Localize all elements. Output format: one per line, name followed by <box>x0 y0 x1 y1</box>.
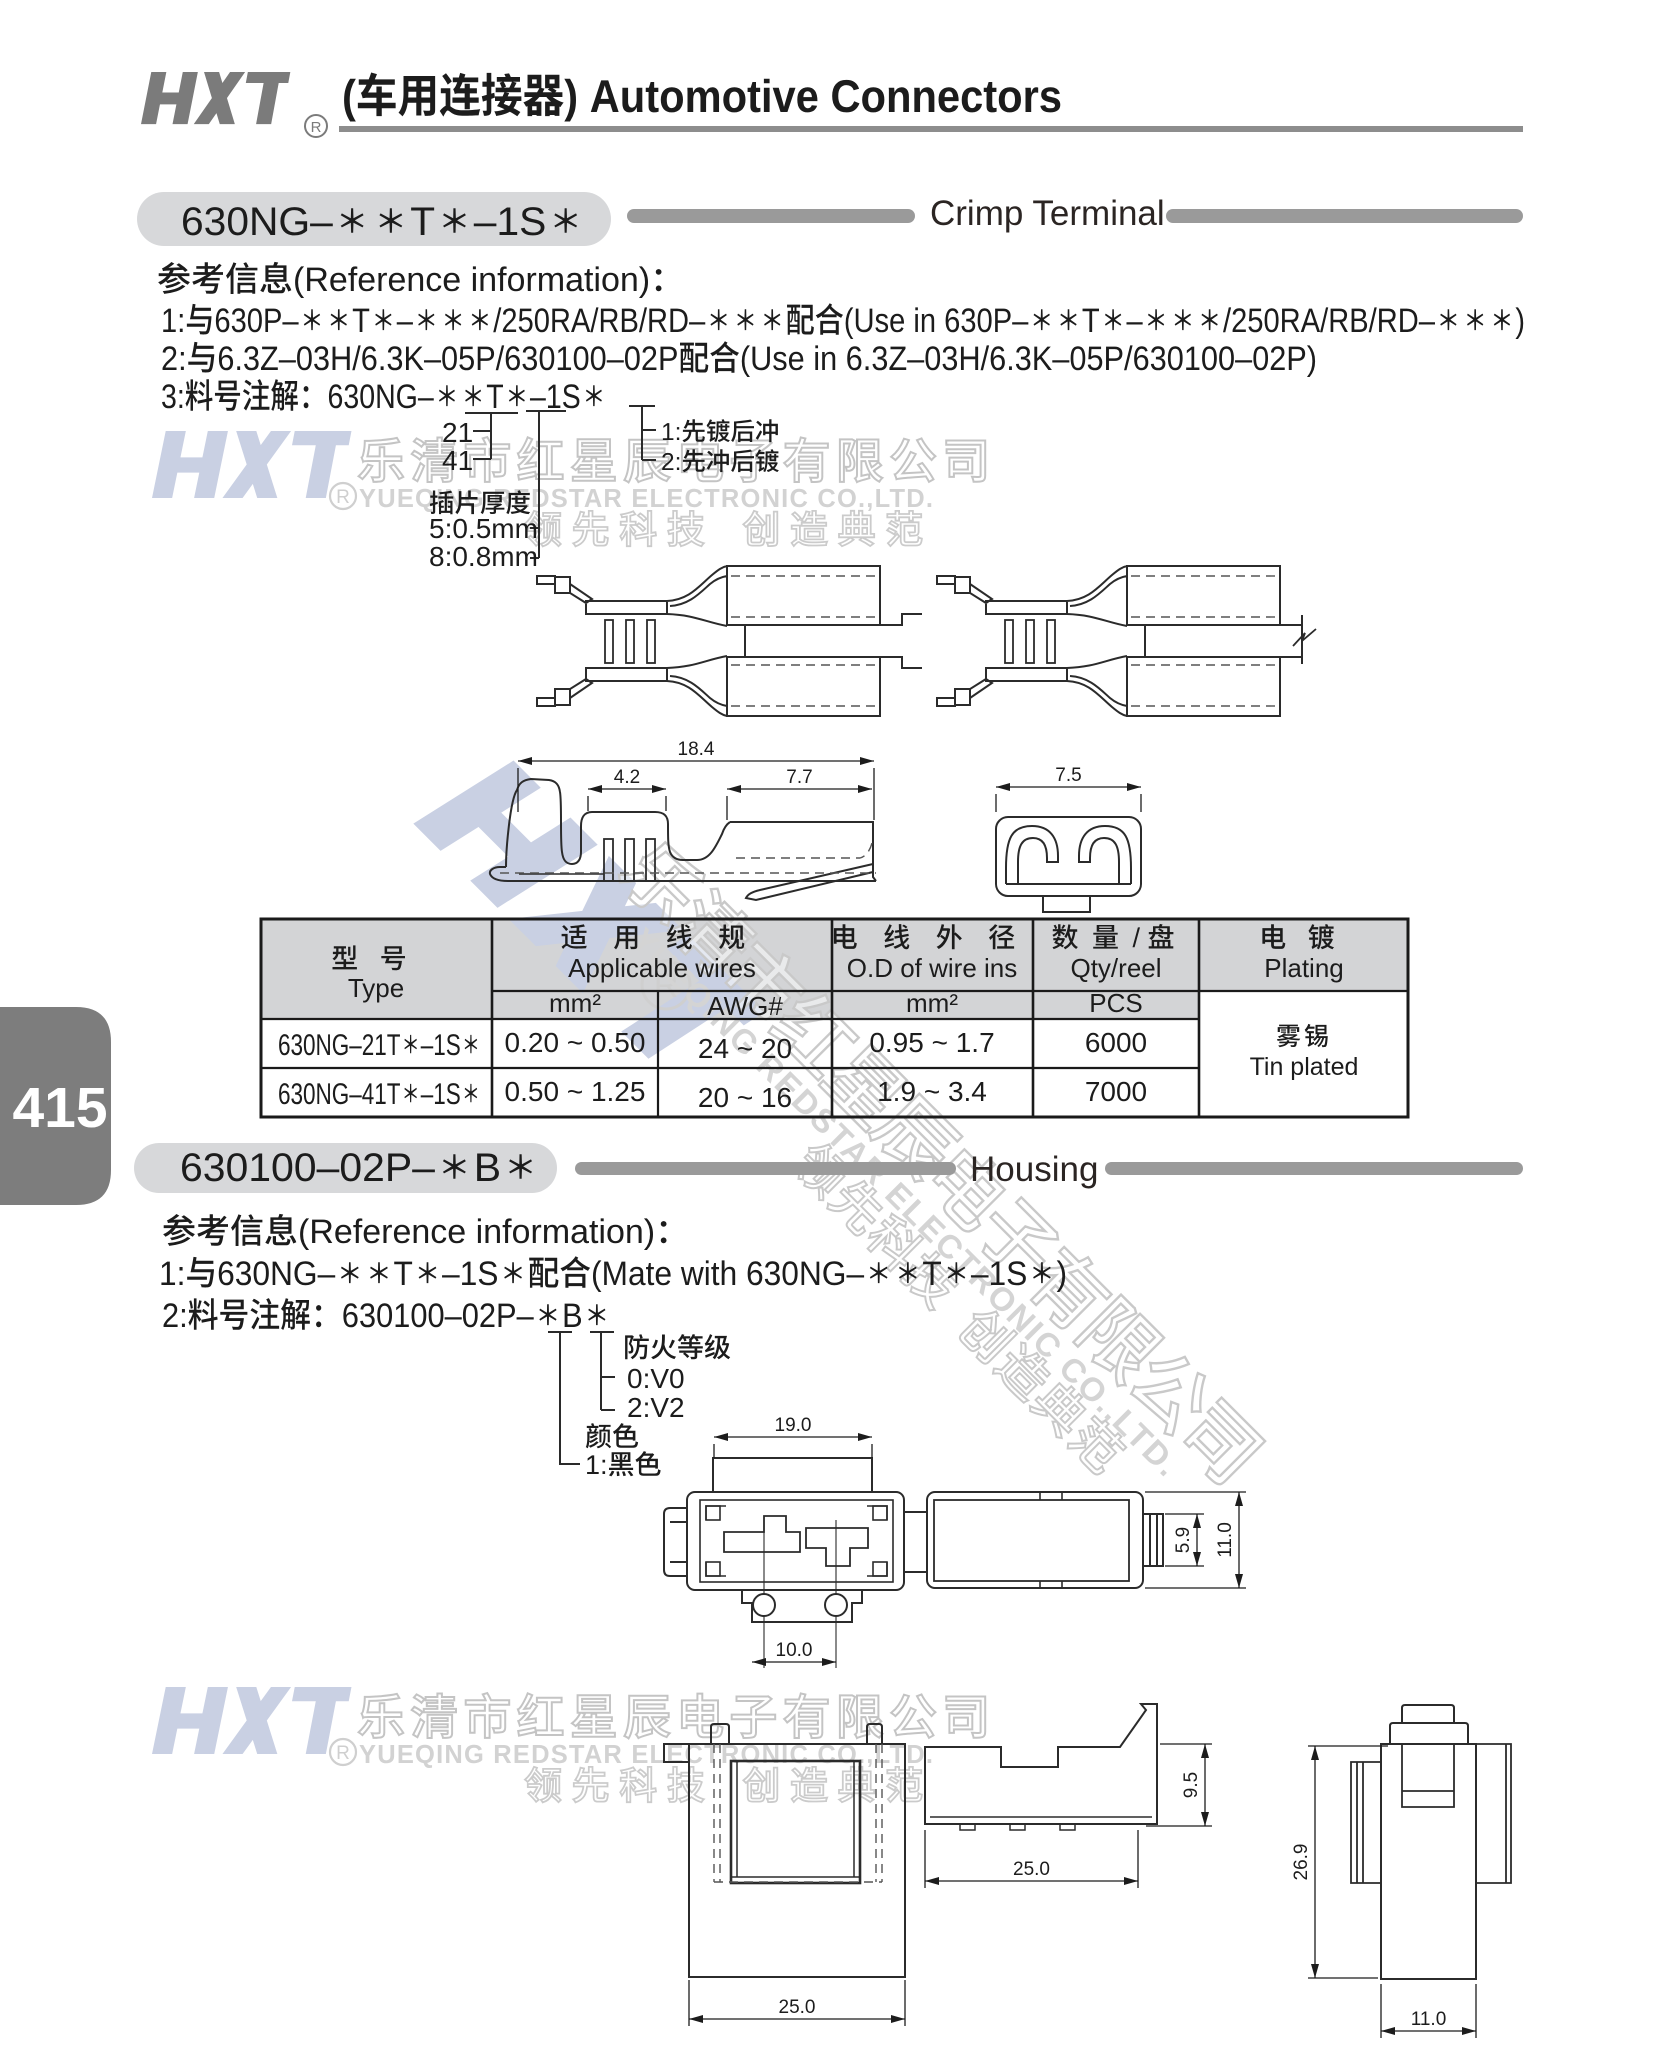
svg-text:0.95 ~ 1.7: 0.95 ~ 1.7 <box>869 1027 994 1058</box>
svg-text:4.2: 4.2 <box>614 767 640 788</box>
svg-text:7000: 7000 <box>1085 1076 1147 1107</box>
svg-text:Housing: Housing <box>970 1150 1098 1189</box>
svg-text:Applicable wires: Applicable wires <box>568 953 756 983</box>
svg-text:0:V0: 0:V0 <box>627 1363 685 1394</box>
svg-text:0.50 ~ 1.25: 0.50 ~ 1.25 <box>505 1076 646 1107</box>
svg-text:mm²: mm² <box>549 988 601 1018</box>
svg-text:7.5: 7.5 <box>1055 765 1081 786</box>
svg-text:24 ~ 20: 24 ~ 20 <box>698 1033 792 1064</box>
svg-text:9.5: 9.5 <box>1181 1772 1202 1798</box>
svg-text:415: 415 <box>12 1076 107 1140</box>
svg-text:21: 21 <box>442 417 473 448</box>
svg-text:0.20 ~ 0.50: 0.20 ~ 0.50 <box>505 1027 646 1058</box>
svg-text:18.4: 18.4 <box>678 739 715 760</box>
svg-text:2:V2: 2:V2 <box>627 1392 685 1423</box>
svg-text:Tin plated: Tin plated <box>1250 1053 1359 1081</box>
svg-text:5:0.5mm: 5:0.5mm <box>429 513 538 544</box>
svg-text:PCS: PCS <box>1089 988 1142 1018</box>
svg-text:O.D of wire ins: O.D of wire ins <box>847 953 1018 983</box>
svg-text:Qty/reel: Qty/reel <box>1070 953 1161 983</box>
svg-text:11.0: 11.0 <box>1411 2009 1447 2030</box>
svg-text:41: 41 <box>442 445 473 476</box>
svg-text:19.0: 19.0 <box>775 1415 812 1436</box>
svg-text:1.9 ~ 3.4: 1.9 ~ 3.4 <box>877 1076 987 1107</box>
svg-text:7.7: 7.7 <box>786 767 812 788</box>
svg-text:6000: 6000 <box>1085 1027 1147 1058</box>
svg-text:R: R <box>311 119 322 136</box>
svg-text:mm²: mm² <box>906 988 958 1018</box>
svg-text:8:0.8mm: 8:0.8mm <box>429 541 538 572</box>
svg-text:25.0: 25.0 <box>1013 1859 1050 1880</box>
svg-text:AWG#: AWG# <box>707 991 783 1021</box>
svg-text:11.0: 11.0 <box>1215 1522 1236 1558</box>
svg-text:20 ~ 16: 20 ~ 16 <box>698 1082 792 1113</box>
svg-text:5.9: 5.9 <box>1173 1527 1194 1553</box>
svg-text:Plating: Plating <box>1264 953 1344 983</box>
svg-text:Crimp Terminal: Crimp Terminal <box>930 194 1165 233</box>
svg-text:Type: Type <box>348 973 404 1003</box>
svg-text:10.0: 10.0 <box>776 1640 813 1661</box>
svg-text:26.9: 26.9 <box>1291 1844 1312 1881</box>
svg-text:25.0: 25.0 <box>779 1997 816 2018</box>
